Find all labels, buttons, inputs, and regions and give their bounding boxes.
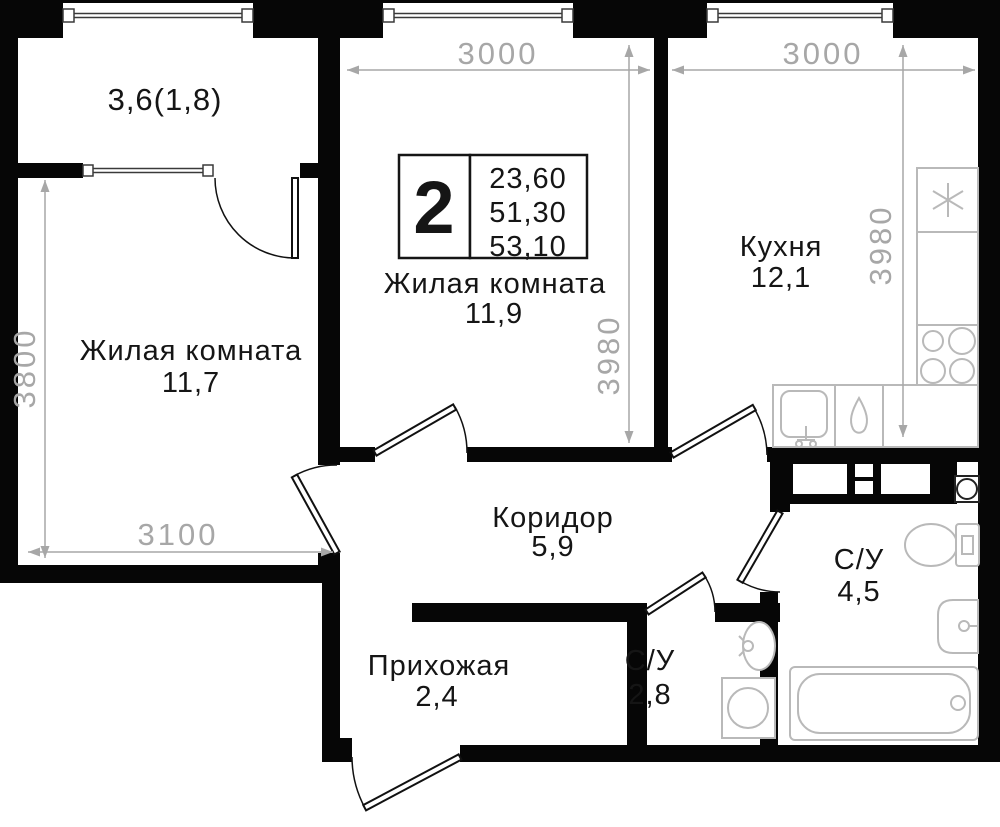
door-living-middle <box>374 404 468 455</box>
window-living-middle <box>383 3 573 38</box>
door-balcony <box>215 178 298 258</box>
hallway-area: 2,4 <box>415 681 458 713</box>
living-left-area: 11,7 <box>162 367 220 399</box>
window-kitchen <box>707 3 893 38</box>
dim-3800-living-left: 3800 <box>7 328 42 409</box>
dim-3980-living-middle: 3980 <box>591 315 626 396</box>
bathroom-big-area: 4,5 <box>837 576 880 608</box>
door-living-left <box>292 465 340 554</box>
boiler-unit <box>835 385 883 447</box>
balcony-label: 3,6(1,8) <box>108 82 223 117</box>
corridor-area: 5,9 <box>531 531 574 563</box>
tall-cabinet <box>917 232 978 325</box>
door-bathroom-small <box>645 572 715 614</box>
living-middle-area: 11,9 <box>465 298 523 330</box>
door-entrance <box>352 754 461 810</box>
area-value-3: 53,10 <box>489 231 567 263</box>
title-block: 2 23,60 51,30 53,10 <box>399 155 587 263</box>
door-bathroom-big <box>737 511 782 593</box>
floor-plan-svg: 3000 3000 3980 3980 3800 3100 2 23,60 51… <box>0 0 1000 827</box>
stove <box>917 325 978 385</box>
bathroom-small-fixtures <box>722 622 775 738</box>
dimension-living-middle-depth: 3980 <box>591 45 634 443</box>
washbasin-big <box>938 600 978 653</box>
dimension-living-middle-width: 3000 <box>347 36 650 75</box>
washbasin-small <box>739 622 775 670</box>
area-value-1: 23,60 <box>489 163 567 195</box>
extractor-fan <box>955 476 979 502</box>
kitchen-name: Кухня <box>740 231 823 263</box>
door-kitchen <box>671 405 768 458</box>
counter <box>883 385 978 447</box>
bathtub <box>790 667 978 740</box>
dim-3000-kitchen: 3000 <box>783 36 864 71</box>
bathroom-small-name: С/У <box>625 645 675 677</box>
bathroom-small-area: 2,8 <box>628 679 671 711</box>
floor-plan: 3000 3000 3980 3980 3800 3100 2 23,60 51… <box>0 0 1000 827</box>
bathroom-big-name: С/У <box>834 544 884 576</box>
dim-3100-living-left: 3100 <box>138 517 219 552</box>
dim-3000-living-middle: 3000 <box>458 36 539 71</box>
living-middle-name: Жилая комната <box>384 268 606 300</box>
bathroom-big-fixtures <box>790 476 979 740</box>
kitchen-area: 12,1 <box>751 262 811 294</box>
dimension-kitchen-width: 3000 <box>672 36 975 75</box>
toilet <box>905 524 979 566</box>
dimension-living-left-width: 3100 <box>28 517 333 557</box>
corridor-name: Коридор <box>492 502 614 534</box>
washing-machine <box>722 678 775 738</box>
kitchen-sink <box>773 385 835 447</box>
area-value-2: 51,30 <box>489 197 567 229</box>
dimension-kitchen-depth: 3980 <box>863 45 908 437</box>
fridge <box>917 168 978 232</box>
dim-3980-kitchen: 3980 <box>863 205 898 286</box>
hallway-name: Прихожая <box>368 650 510 682</box>
window-balcony <box>63 3 253 38</box>
rooms-count: 2 <box>413 166 454 249</box>
living-left-name: Жилая комната <box>80 335 302 367</box>
window-balcony-inner <box>83 163 213 178</box>
